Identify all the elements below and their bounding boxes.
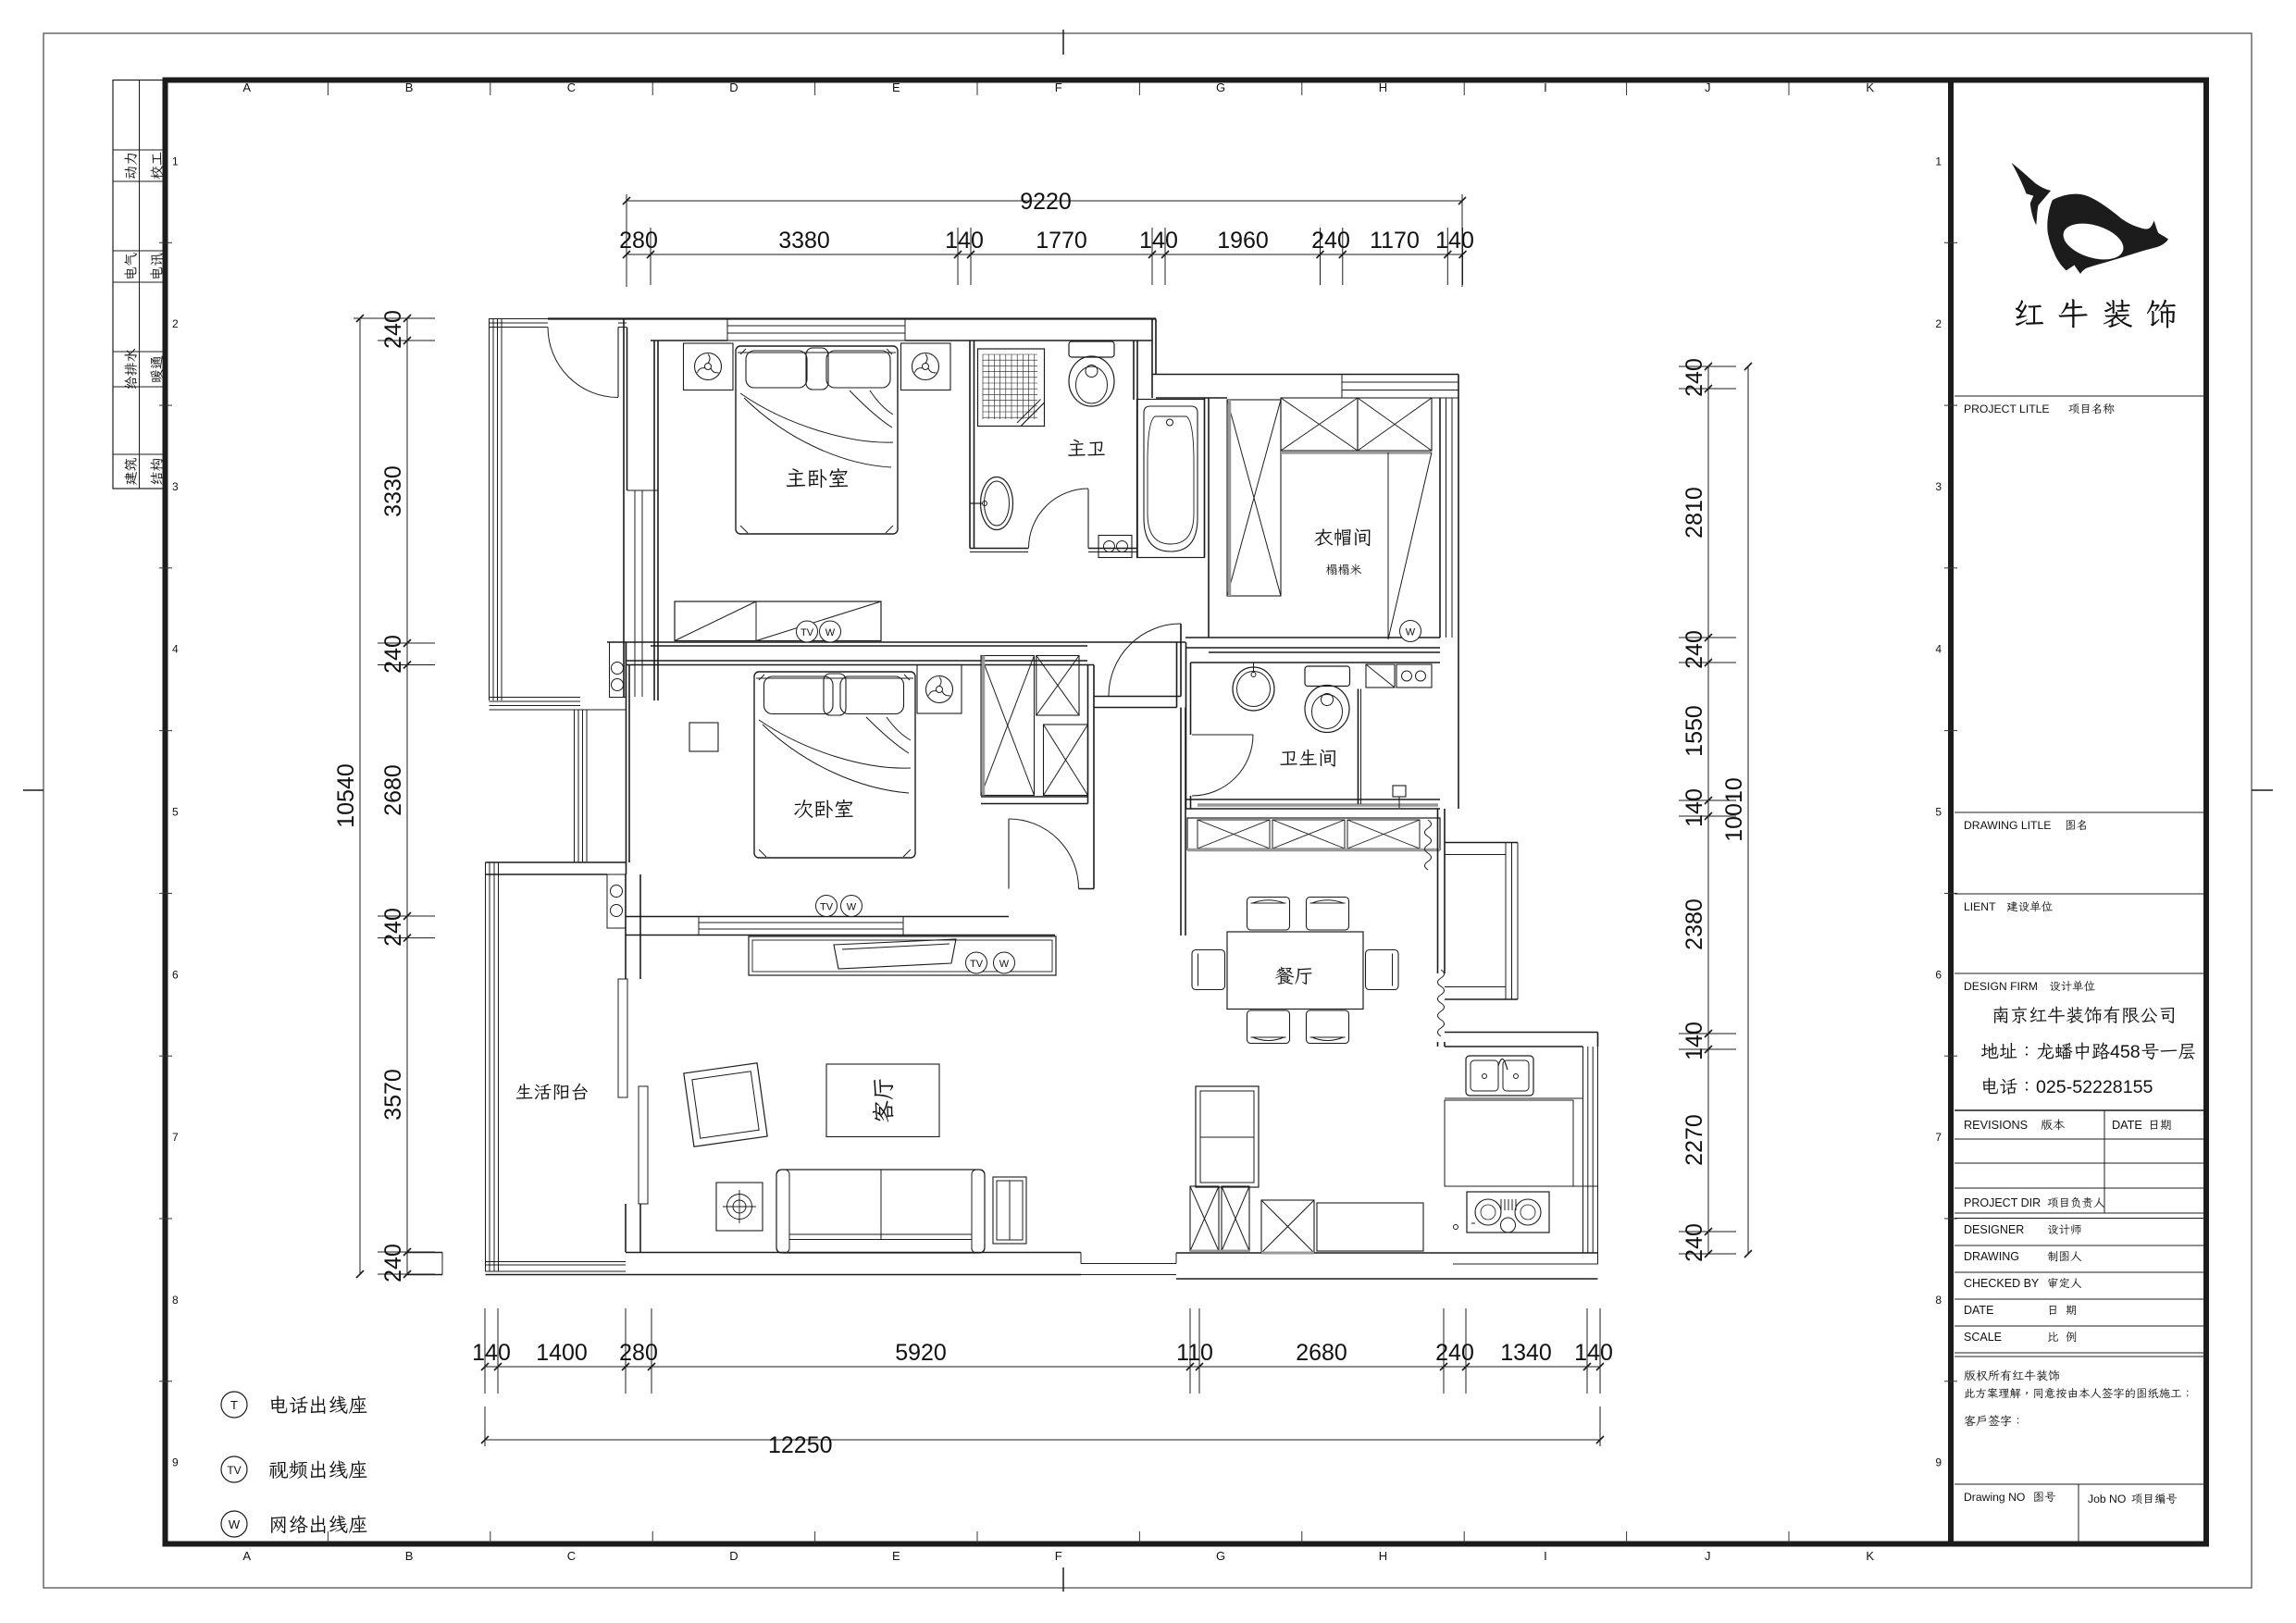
svg-text:C: C (567, 1549, 576, 1563)
svg-text:2380: 2380 (1682, 898, 1707, 950)
svg-text:Job NO: Job NO (2088, 1493, 2126, 1505)
svg-text:4: 4 (172, 643, 179, 656)
svg-text:10010: 10010 (1721, 777, 1747, 842)
svg-text:W: W (825, 627, 836, 638)
svg-text:DESIGNER: DESIGNER (1964, 1223, 2024, 1236)
svg-text:9220: 9220 (1020, 189, 1072, 215)
svg-text:B: B (405, 1549, 414, 1563)
svg-text:1770: 1770 (1036, 228, 1087, 254)
svg-text:F: F (1055, 1549, 1062, 1563)
svg-text:F: F (1055, 81, 1062, 94)
svg-text:I: I (1544, 1549, 1547, 1563)
svg-text:140: 140 (1435, 228, 1474, 254)
svg-text:G: G (1216, 81, 1225, 94)
svg-text:7: 7 (172, 1131, 179, 1144)
svg-text:T: T (230, 1398, 238, 1412)
svg-text:1960: 1960 (1217, 228, 1269, 254)
svg-text:DATE: DATE (1964, 1304, 1993, 1317)
svg-text:3: 3 (1935, 480, 1942, 493)
svg-text:K: K (1866, 81, 1874, 94)
svg-text:240: 240 (380, 1244, 406, 1282)
svg-text:E: E (892, 81, 900, 94)
svg-text:1340: 1340 (1500, 1340, 1552, 1366)
svg-text:2680: 2680 (380, 764, 406, 816)
svg-text:240: 240 (380, 310, 406, 349)
svg-text:8: 8 (172, 1294, 179, 1307)
svg-text:9: 9 (172, 1456, 179, 1469)
svg-text:B: B (405, 81, 414, 94)
svg-text:J: J (1705, 81, 1711, 94)
svg-text:5920: 5920 (895, 1340, 947, 1366)
svg-text:280: 280 (619, 1340, 658, 1366)
svg-text:DRAWING: DRAWING (1964, 1250, 2019, 1263)
svg-text:9: 9 (1935, 1456, 1942, 1469)
svg-text:280: 280 (619, 228, 658, 254)
svg-text:458: 458 (2110, 1042, 2141, 1062)
svg-text:W: W (999, 959, 1010, 970)
svg-text:DESIGN FIRM: DESIGN FIRM (1964, 980, 2038, 993)
svg-text:2680: 2680 (1296, 1340, 1347, 1366)
svg-text:1170: 1170 (1370, 228, 1420, 254)
svg-text:REVISIONS: REVISIONS (1964, 1119, 2028, 1132)
svg-text:PROJECT DIR: PROJECT DIR (1964, 1196, 2041, 1209)
svg-text:DRAWING LITLE: DRAWING LITLE (1964, 819, 2051, 832)
svg-text:LIENT: LIENT (1964, 900, 1996, 913)
svg-text:240: 240 (1682, 358, 1707, 397)
svg-text:SCALE: SCALE (1964, 1331, 2002, 1344)
svg-text:240: 240 (1311, 228, 1350, 254)
svg-text:6: 6 (1935, 968, 1942, 981)
svg-text:W: W (1406, 627, 1416, 638)
svg-text:140: 140 (945, 228, 984, 254)
svg-text:J: J (1705, 1549, 1711, 1563)
svg-text:240: 240 (380, 908, 406, 947)
svg-text:8: 8 (1935, 1294, 1942, 1307)
svg-text:PROJECT LITLE: PROJECT LITLE (1964, 403, 2050, 415)
svg-text:2270: 2270 (1682, 1114, 1707, 1166)
svg-text:3330: 3330 (380, 465, 406, 517)
svg-text:W: W (847, 902, 857, 913)
svg-text:A: A (242, 1549, 251, 1563)
svg-text:H: H (1379, 1549, 1387, 1563)
svg-text:E: E (892, 1549, 900, 1563)
svg-text:3380: 3380 (778, 228, 830, 254)
svg-text:Drawing NO: Drawing NO (1964, 1491, 2025, 1504)
svg-text:TV: TV (227, 1464, 241, 1477)
svg-text:5: 5 (1935, 806, 1942, 819)
svg-text:2810: 2810 (1682, 487, 1707, 539)
svg-text:6: 6 (172, 968, 179, 981)
svg-text:240: 240 (1682, 1223, 1707, 1262)
svg-text:140: 140 (1139, 228, 1178, 254)
svg-text:10540: 10540 (333, 763, 359, 828)
svg-text:140: 140 (1682, 788, 1707, 827)
svg-text:110: 110 (1176, 1340, 1213, 1366)
svg-text:5: 5 (172, 806, 179, 819)
svg-text:3570: 3570 (380, 1069, 406, 1121)
svg-text:1400: 1400 (536, 1340, 588, 1366)
svg-text:2: 2 (1935, 317, 1942, 330)
svg-text:D: D (729, 1549, 738, 1563)
svg-text:C: C (567, 81, 576, 94)
svg-text:TV: TV (800, 627, 814, 638)
svg-text:G: G (1216, 1549, 1225, 1563)
svg-text:240: 240 (380, 635, 406, 674)
svg-text:240: 240 (1435, 1340, 1474, 1366)
svg-text:W: W (229, 1518, 241, 1531)
svg-text:140: 140 (472, 1340, 511, 1366)
svg-text:140: 140 (1682, 1022, 1707, 1060)
svg-text:DATE: DATE (2112, 1119, 2142, 1132)
svg-text:H: H (1379, 81, 1387, 94)
svg-text:7: 7 (1935, 1131, 1942, 1144)
svg-text:K: K (1866, 1549, 1874, 1563)
svg-text:I: I (1544, 81, 1547, 94)
svg-text:D: D (729, 81, 738, 94)
svg-text:1: 1 (172, 155, 179, 167)
svg-text:CHECKED BY: CHECKED BY (1964, 1277, 2040, 1290)
svg-text:A: A (242, 81, 251, 94)
svg-text:12250: 12250 (768, 1432, 833, 1458)
svg-text:140: 140 (1574, 1340, 1613, 1366)
svg-text:TV: TV (820, 902, 834, 913)
svg-text:4: 4 (1935, 643, 1942, 656)
svg-text:1: 1 (1935, 155, 1942, 167)
svg-text:3: 3 (172, 480, 179, 493)
svg-text:025-52228155: 025-52228155 (2036, 1077, 2153, 1097)
svg-text:TV: TV (970, 959, 984, 970)
svg-text:2: 2 (172, 317, 179, 330)
svg-text:1550: 1550 (1682, 705, 1707, 757)
svg-text:240: 240 (1682, 630, 1707, 669)
